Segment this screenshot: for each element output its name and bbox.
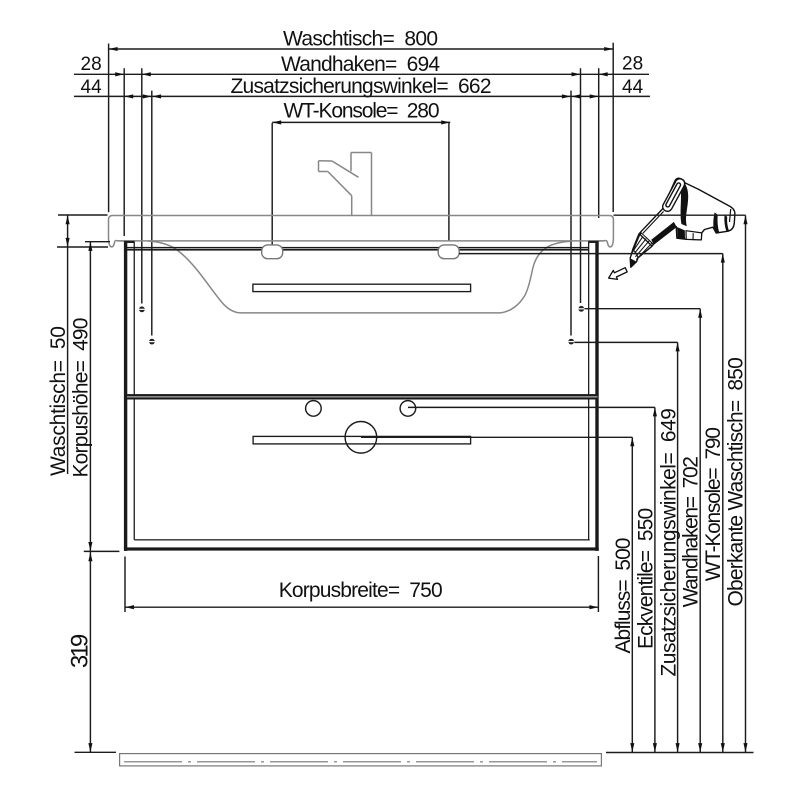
svg-text:Waschtisch= 800: Waschtisch= 800 — [283, 28, 438, 51]
svg-text:28: 28 — [81, 54, 102, 75]
svg-text:44: 44 — [622, 77, 644, 98]
svg-text:Oberkante Waschtisch= 850: Oberkante Waschtisch= 850 — [725, 357, 748, 606]
svg-text:44: 44 — [81, 77, 103, 98]
svg-text:Eckventile= 550: Eckventile= 550 — [634, 508, 657, 649]
svg-text:Waschtisch= 50: Waschtisch= 50 — [47, 326, 70, 476]
svg-text:WT-Konsole= 280: WT-Konsole= 280 — [284, 100, 440, 123]
svg-text:Korpusbreite= 750: Korpusbreite= 750 — [279, 579, 443, 602]
svg-text:Wandhaken= 694: Wandhaken= 694 — [281, 53, 440, 76]
svg-text:319: 319 — [67, 634, 94, 668]
svg-text:28: 28 — [622, 54, 643, 75]
svg-text:WT-Konsole= 790: WT-Konsole= 790 — [702, 427, 725, 581]
svg-text:Wandhaken= 702: Wandhaken= 702 — [680, 456, 703, 607]
svg-text:Korpushöhe= 490: Korpushöhe= 490 — [69, 318, 92, 478]
svg-text:Abfluss= 500: Abfluss= 500 — [612, 538, 635, 654]
svg-text:Zusatzsicherungswinkel= 662: Zusatzsicherungswinkel= 662 — [231, 75, 492, 98]
svg-text:Zusatzsicherungswinkel= 649: Zusatzsicherungswinkel= 649 — [657, 408, 680, 677]
